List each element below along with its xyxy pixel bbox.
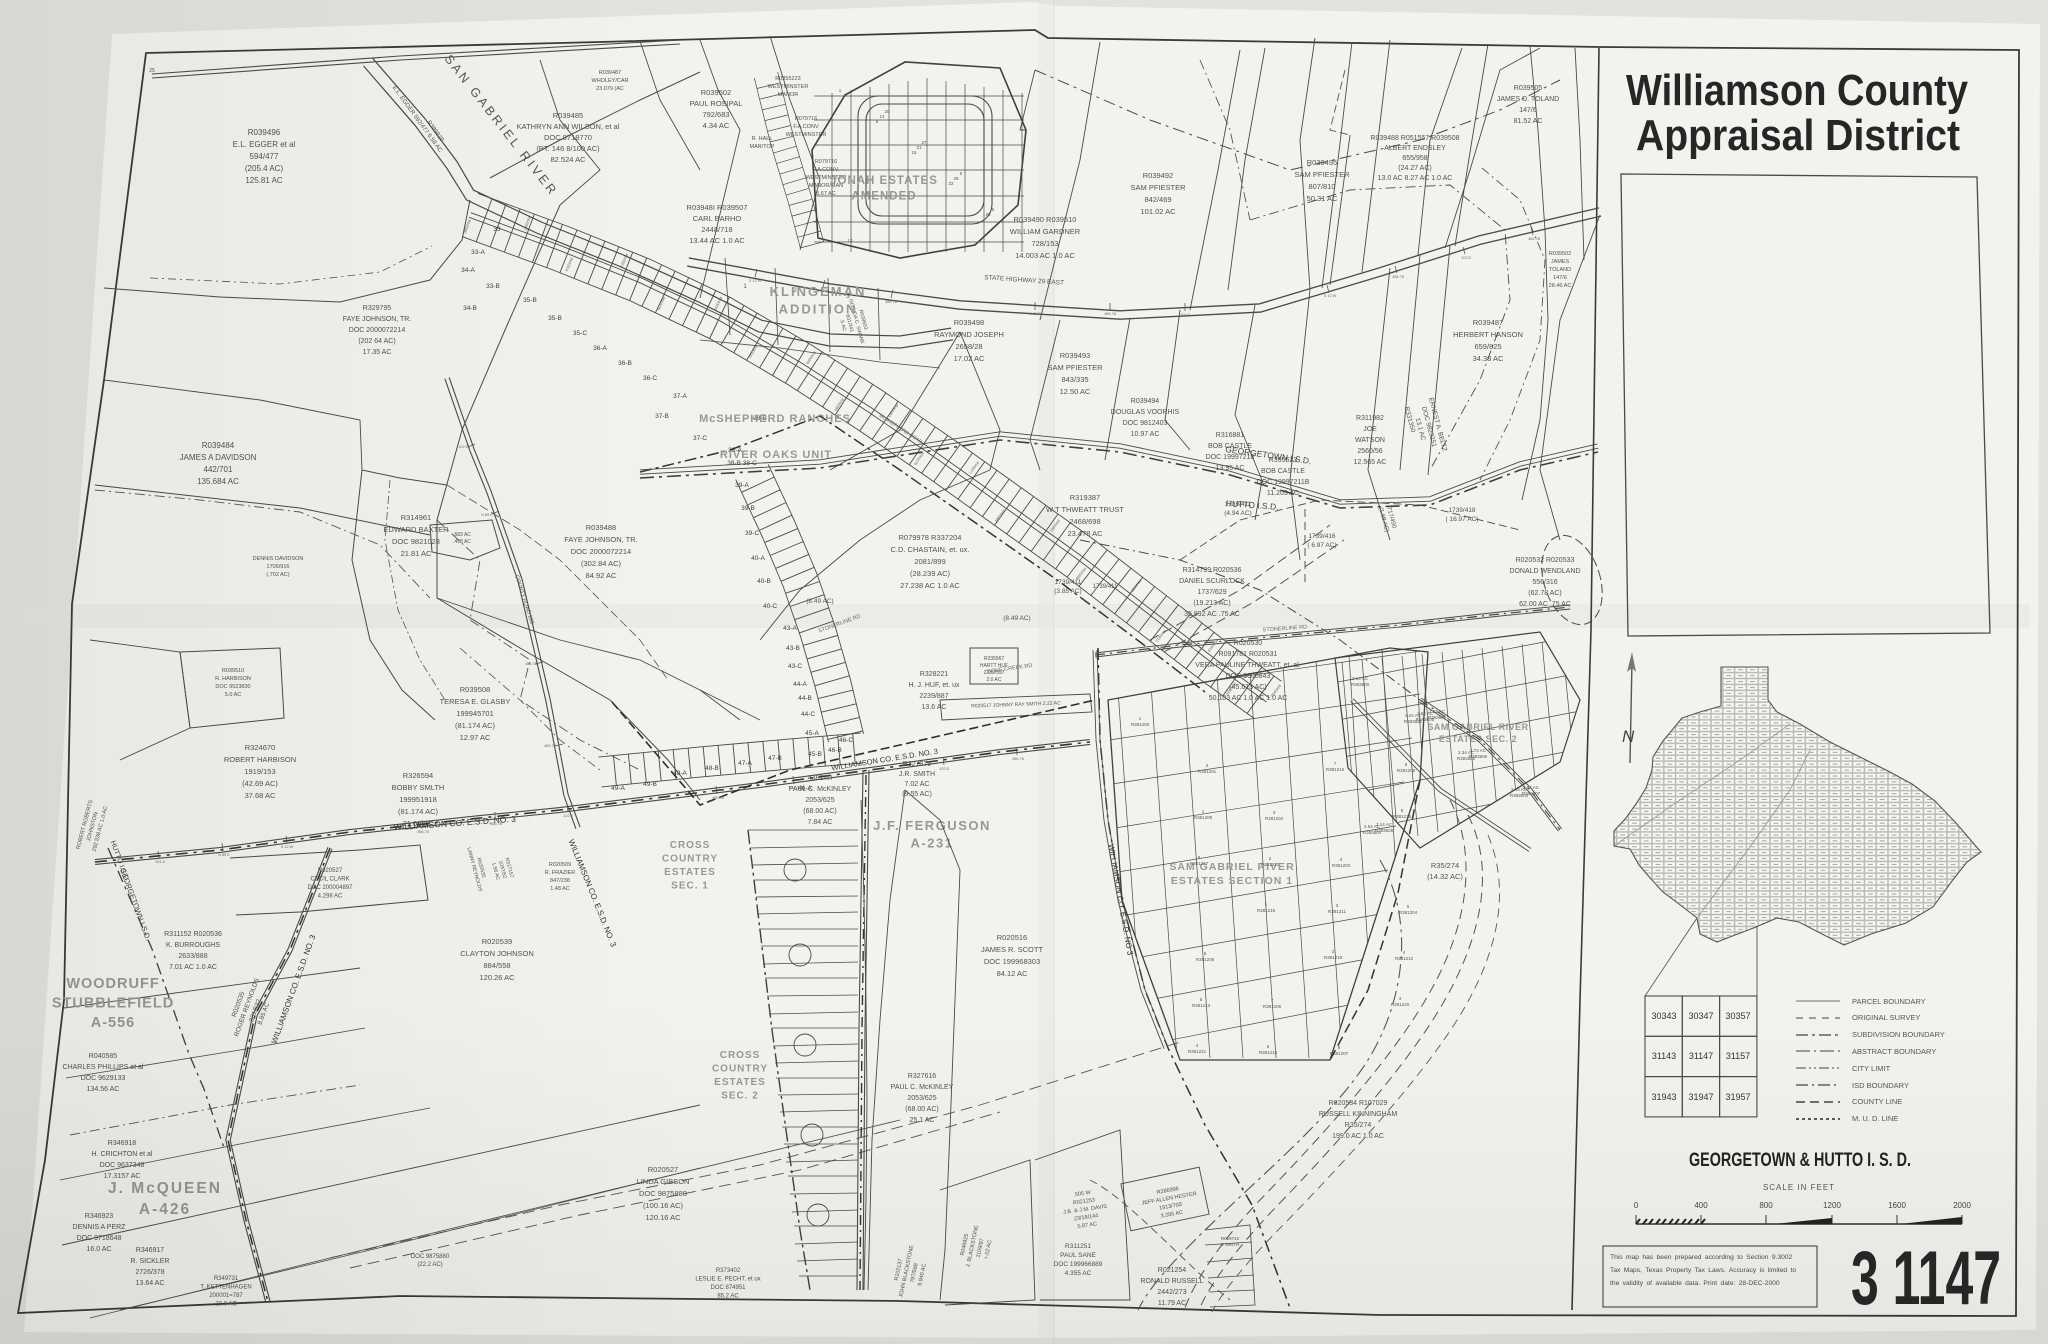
svg-text:102.5: 102.5 (1461, 256, 1471, 260)
svg-text:40-A: 40-A (751, 555, 765, 562)
svg-text:45-B: 45-B (808, 751, 822, 758)
svg-text:(8.49 AC): (8.49 AC) (806, 598, 833, 605)
svg-text:ISD BOUNDARY: ISD BOUNDARY (1852, 1081, 1909, 1090)
svg-text:46-C: 46-C (839, 737, 853, 744)
svg-text:400: 400 (1694, 1201, 1708, 1210)
svg-text:30357: 30357 (1725, 1011, 1750, 1021)
svg-text:CITY LIMIT: CITY LIMIT (1852, 1064, 1891, 1073)
svg-text:R039502JAMESTOLAND147/628.46 A: R039502JAMESTOLAND147/628.46 AC (1549, 251, 1572, 289)
svg-text:S 12 W: S 12 W (749, 279, 762, 283)
svg-text:ABSTRACT BOUNDARY: ABSTRACT BOUNDARY (1852, 1047, 1936, 1056)
svg-text:44-C: 44-C (801, 711, 815, 718)
svg-text:40-B: 40-B (757, 578, 771, 585)
svg-text:S 12 W: S 12 W (817, 289, 830, 293)
svg-text:14: 14 (879, 114, 885, 119)
svg-text:30347: 30347 (1688, 1011, 1713, 1021)
svg-text:102.5: 102.5 (939, 767, 949, 771)
svg-text:2.14 ACR383608: 2.14 ACR383608 (1375, 822, 1394, 833)
svg-text:3 1147: 3 1147 (1851, 1236, 2001, 1321)
svg-text:Williamson County: Williamson County (1626, 66, 1968, 115)
svg-text:22: 22 (948, 181, 954, 186)
svg-text:COUNTY LINE: COUNTY LINE (1852, 1097, 1902, 1106)
svg-text:39-A: 39-A (735, 482, 749, 489)
svg-text:1739/411: 1739/411 (1093, 584, 1118, 590)
svg-text:21: 21 (916, 145, 922, 150)
svg-text:ORIGINAL SURVEY: ORIGINAL SURVEY (1852, 1013, 1920, 1022)
svg-text:SCALE IN FEET: SCALE IN FEET (1763, 1183, 1835, 1192)
svg-text:M. U. D. LINE: M. U. D. LINE (1852, 1114, 1898, 1123)
svg-text:43-B: 43-B (786, 645, 800, 652)
svg-text:PARCEL BOUNDARY: PARCEL BOUNDARY (1852, 997, 1926, 1006)
svg-text:43-C: 43-C (788, 663, 802, 670)
svg-text:46-B: 46-B (828, 747, 842, 754)
svg-text:456.78: 456.78 (1012, 757, 1024, 761)
svg-text:1600: 1600 (1888, 1201, 1906, 1210)
svg-text:2000: 2000 (1953, 1201, 1971, 1210)
svg-text:456.78: 456.78 (1528, 237, 1540, 241)
svg-text:N: N (1622, 727, 1635, 746)
svg-text:1200: 1200 (1823, 1201, 1841, 1210)
svg-text:456.78: 456.78 (1392, 275, 1404, 279)
svg-text:SUBDIVISION BOUNDARY: SUBDIVISION BOUNDARY (1852, 1030, 1945, 1039)
svg-text:800: 800 (1759, 1201, 1773, 1210)
svg-text:0: 0 (1634, 1201, 1639, 1210)
svg-text:456.78: 456.78 (1104, 312, 1116, 316)
svg-text:44-A: 44-A (793, 681, 807, 688)
svg-text:456.78: 456.78 (885, 300, 897, 304)
svg-text:GEORGETOWN & HUTTO I. S. D.: GEORGETOWN & HUTTO I. S. D. (1689, 1150, 1911, 1171)
svg-text:15: 15 (911, 150, 917, 155)
svg-text:31947: 31947 (1688, 1092, 1713, 1102)
svg-text:20: 20 (884, 109, 890, 114)
svg-text:31143: 31143 (1652, 1051, 1676, 1061)
svg-text:40-C: 40-C (763, 603, 777, 610)
svg-text:102.5: 102.5 (1180, 313, 1190, 317)
svg-text:2.14 ACR383600: 2.14 ACR383600 (1351, 676, 1370, 687)
svg-text:27: 27 (921, 140, 927, 145)
svg-text:N 89 E: N 89 E (1029, 312, 1041, 316)
svg-text:McSHEPHERD RANCHES: McSHEPHERD RANCHES (699, 413, 851, 425)
svg-text:28: 28 (953, 176, 959, 181)
svg-text:45-A: 45-A (805, 730, 819, 737)
svg-text:39-B: 39-B (741, 505, 755, 512)
svg-text:31957: 31957 (1725, 1092, 1750, 1102)
svg-text:456.78: 456.78 (712, 796, 724, 800)
svg-text:31157: 31157 (1726, 1051, 1750, 1061)
svg-text:(8.49 AC): (8.49 AC) (1003, 615, 1030, 622)
svg-text:43-A: 43-A (783, 625, 797, 632)
svg-text:39-C: 39-C (745, 530, 759, 537)
svg-text:This map has been prepared: This map has been prepared according to … (1610, 1254, 1796, 1287)
svg-text:13: 13 (847, 238, 853, 243)
svg-text:31943: 31943 (1651, 1092, 1676, 1102)
svg-text:44-B: 44-B (798, 695, 812, 702)
svg-text:31147: 31147 (1689, 1051, 1713, 1061)
svg-text:47-A: 47-A (738, 760, 752, 767)
svg-text:48-B: 48-B (705, 765, 719, 772)
svg-text:S 12 W: S 12 W (1324, 294, 1337, 298)
svg-text:321.0: 321.0 (789, 786, 799, 790)
svg-text:2.74 ACR383606: 2.74 ACR383606 (1469, 748, 1488, 759)
svg-text:30343: 30343 (1651, 1011, 1676, 1021)
svg-text:Appraisal District: Appraisal District (1636, 111, 1960, 160)
svg-text:47-B: 47-B (768, 755, 782, 762)
